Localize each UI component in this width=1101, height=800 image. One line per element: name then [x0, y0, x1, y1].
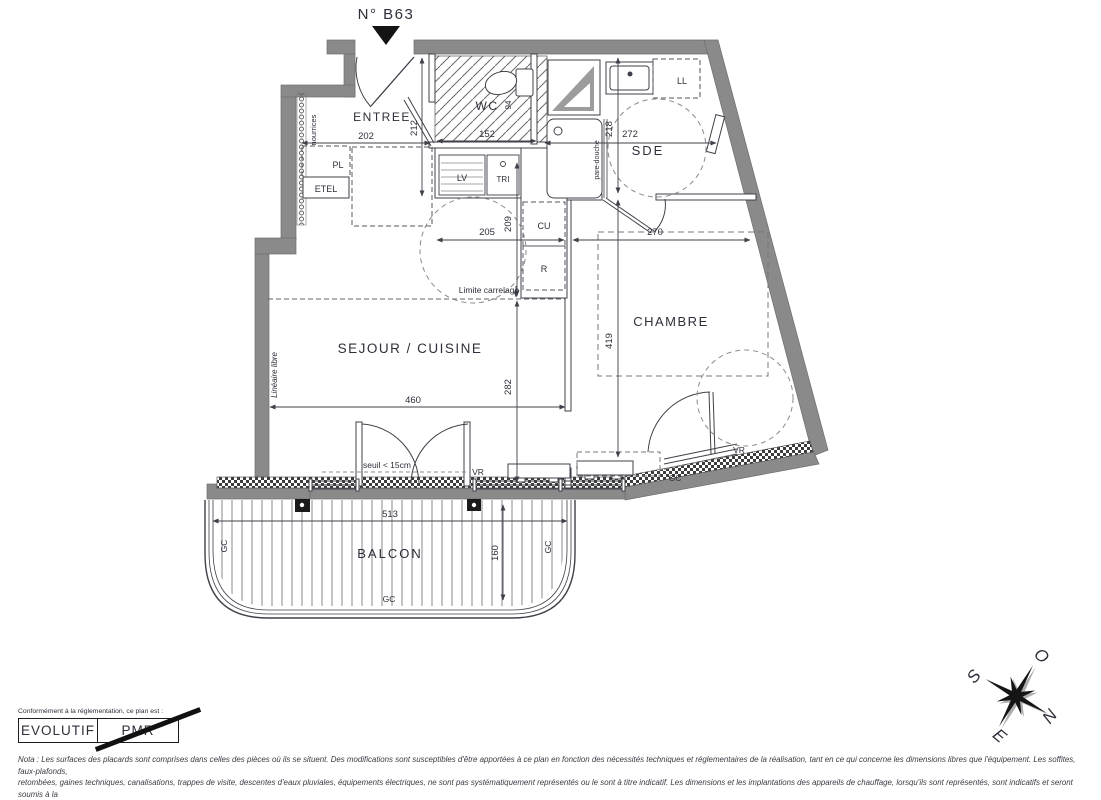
nota-disclaimer: Nota : Les surfaces des placards sont co…: [18, 754, 1086, 800]
label-r: R: [541, 264, 548, 274]
dim-wc-width: 152: [479, 129, 495, 140]
washbasin-fixture: [606, 62, 653, 94]
room-label-sde: SDE: [632, 143, 665, 158]
label-gc-chambre: GC: [669, 473, 682, 483]
dim-cuisine-width: 205: [479, 227, 495, 238]
dim-entree-width: 202: [358, 131, 374, 142]
label-lineaire-libre: Linéaire libre: [270, 352, 279, 398]
room-label-wc: WC: [476, 99, 499, 113]
dim-sde-height: 218: [604, 121, 615, 137]
label-vr-sejour: VR: [472, 467, 484, 477]
dim-sejour-width: 460: [405, 395, 421, 406]
label-seuil: seuil < 15cm: [363, 460, 411, 470]
room-label-chambre: CHAMBRE: [633, 314, 709, 329]
room-label-sejour: SEJOUR / CUISINE: [338, 341, 483, 356]
legend-evolutif-box: EVOLUTIF: [18, 718, 98, 743]
label-gc-left: GC: [219, 540, 229, 553]
label-nourrices: nourrices: [309, 114, 318, 145]
label-limite-carrelage: Limite carrelage: [459, 285, 520, 295]
label-etel: ETEL: [315, 184, 338, 194]
compass-n: N: [1039, 705, 1062, 727]
compass-s: S: [963, 666, 985, 687]
label-gc-right: GC: [543, 541, 553, 554]
nota-line-2: retombées, gaines techniques, canalisati…: [18, 777, 1086, 800]
label-lv: LV: [457, 173, 467, 183]
plan-title: N° B63: [358, 6, 415, 23]
dim-balcon-height: 160: [490, 545, 501, 561]
label-pl: PL: [332, 160, 343, 170]
label-cu: CU: [538, 221, 551, 231]
nota-line-1: Nota : Les surfaces des placards sont co…: [18, 754, 1086, 777]
compass-rose: O S N E: [963, 644, 1062, 747]
room-label-balcon: BALCON: [357, 546, 422, 561]
dim-balcon-width: 513: [382, 509, 398, 520]
legend-boxes: EVOLUTIF PMR: [18, 718, 218, 743]
plan-type-legend: Conformément à la réglementation, ce pla…: [18, 708, 218, 743]
dim-chambre-width: 270: [647, 227, 663, 238]
label-vr-chambre: VR: [733, 445, 745, 455]
floorplan-drawing: N° B63: [0, 0, 1101, 800]
dim-wc-height: 94: [504, 100, 513, 109]
legend-evolutif-label: EVOLUTIF: [21, 723, 95, 738]
label-pare-douche: pare-douche: [594, 140, 601, 179]
label-tri: TRI: [497, 175, 510, 184]
compass-o: O: [1030, 644, 1052, 667]
entrance-marker-icon: [372, 26, 400, 45]
dim-sde-width: 272: [622, 129, 638, 140]
dim-chambre-height: 419: [604, 333, 615, 349]
floorplan-page: N° B63: [0, 0, 1101, 800]
room-label-entree: ENTREE: [353, 110, 411, 124]
compass-e: E: [989, 725, 1010, 747]
dim-carrelage-height: 209: [503, 216, 514, 232]
label-gc-bottom: GC: [383, 594, 396, 604]
dim-sejour-height: 282: [503, 379, 514, 395]
label-ll: LL: [677, 76, 687, 86]
